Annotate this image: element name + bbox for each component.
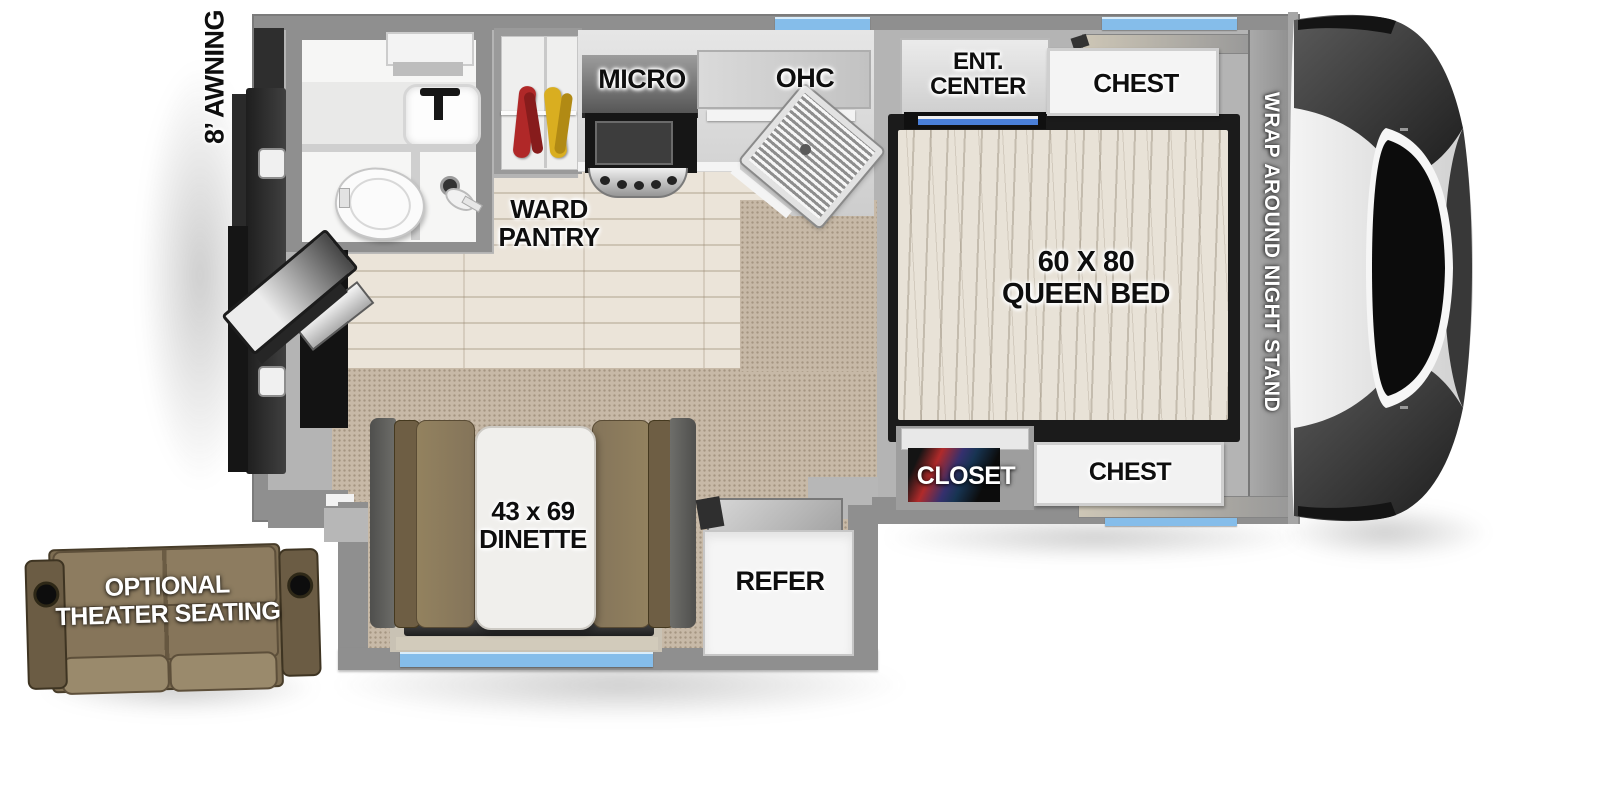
extension-left-ledge bbox=[324, 508, 368, 542]
chest-front-label: CHEST bbox=[1093, 68, 1179, 99]
front-window bbox=[1102, 17, 1237, 30]
sink-faucet-stem bbox=[434, 95, 443, 120]
closet-top-face bbox=[901, 428, 1029, 450]
carpet-strip bbox=[740, 200, 877, 372]
awning-latch-2 bbox=[258, 366, 286, 397]
theater-sofa: OPTIONAL THEATER SEATING bbox=[22, 536, 322, 696]
bench-right-frame bbox=[670, 418, 696, 628]
awning-latch-1 bbox=[258, 148, 286, 179]
awning-label: 8’ AWNING bbox=[200, 10, 231, 144]
floorplan-canvas: OPTIONAL THEATER SEATING 8’ AWNING WARD … bbox=[0, 0, 1600, 797]
refer-label: REFER bbox=[735, 566, 824, 597]
front-cap bbox=[1288, 12, 1488, 524]
corner-sink-drain bbox=[800, 144, 811, 155]
awning-rail-outer bbox=[228, 226, 248, 472]
bench-right-cushion bbox=[592, 420, 651, 628]
range-knob-4 bbox=[651, 180, 661, 189]
sofa-armrest-right bbox=[278, 548, 322, 677]
sofa-seat-left bbox=[61, 654, 170, 695]
ward-pantry-label-line1: WARD bbox=[510, 194, 587, 225]
range-oven-window bbox=[595, 121, 673, 165]
medicine-cabinet bbox=[386, 32, 474, 66]
awning-rail-top bbox=[254, 28, 284, 92]
toilet-hinge bbox=[339, 188, 350, 208]
dinette-step-trim bbox=[396, 637, 658, 650]
range-knob-3 bbox=[634, 181, 644, 190]
ohc-label: OHC bbox=[776, 63, 835, 94]
ent-center-label-line2: CENTER bbox=[930, 73, 1026, 101]
dinette-window bbox=[400, 652, 653, 667]
dinette-label-line1: 43 x 69 bbox=[491, 496, 574, 527]
sofa-seat-right bbox=[169, 651, 278, 692]
bath-partition bbox=[302, 144, 476, 152]
range-knob-5 bbox=[667, 176, 677, 185]
dinette-label-line2: DINETTE bbox=[479, 524, 587, 555]
galley-window bbox=[775, 17, 870, 30]
bench-left-cushion bbox=[416, 420, 475, 628]
micro-label: MICRO bbox=[598, 64, 686, 95]
range-knob-1 bbox=[600, 176, 610, 185]
closet-label: CLOSET bbox=[917, 462, 1015, 491]
bath-shelf bbox=[393, 62, 463, 76]
chest-rear-label: CHEST bbox=[1089, 458, 1171, 487]
nightstand-label: WRAP AROUND NIGHT STAND bbox=[1259, 92, 1283, 412]
tv-glow bbox=[918, 119, 1038, 125]
refrigerator-lid bbox=[707, 498, 843, 534]
refrigerator-lid-corner bbox=[696, 496, 725, 530]
range-knob-2 bbox=[617, 180, 627, 189]
ward-pantry-label-line2: PANTRY bbox=[499, 222, 600, 253]
ent-center-label-line1: ENT. bbox=[953, 48, 1003, 76]
bench-left-frame bbox=[370, 418, 396, 628]
bed-label-line1: 60 X 80 bbox=[1038, 246, 1134, 279]
bed-label-line2: QUEEN BED bbox=[1002, 278, 1170, 311]
